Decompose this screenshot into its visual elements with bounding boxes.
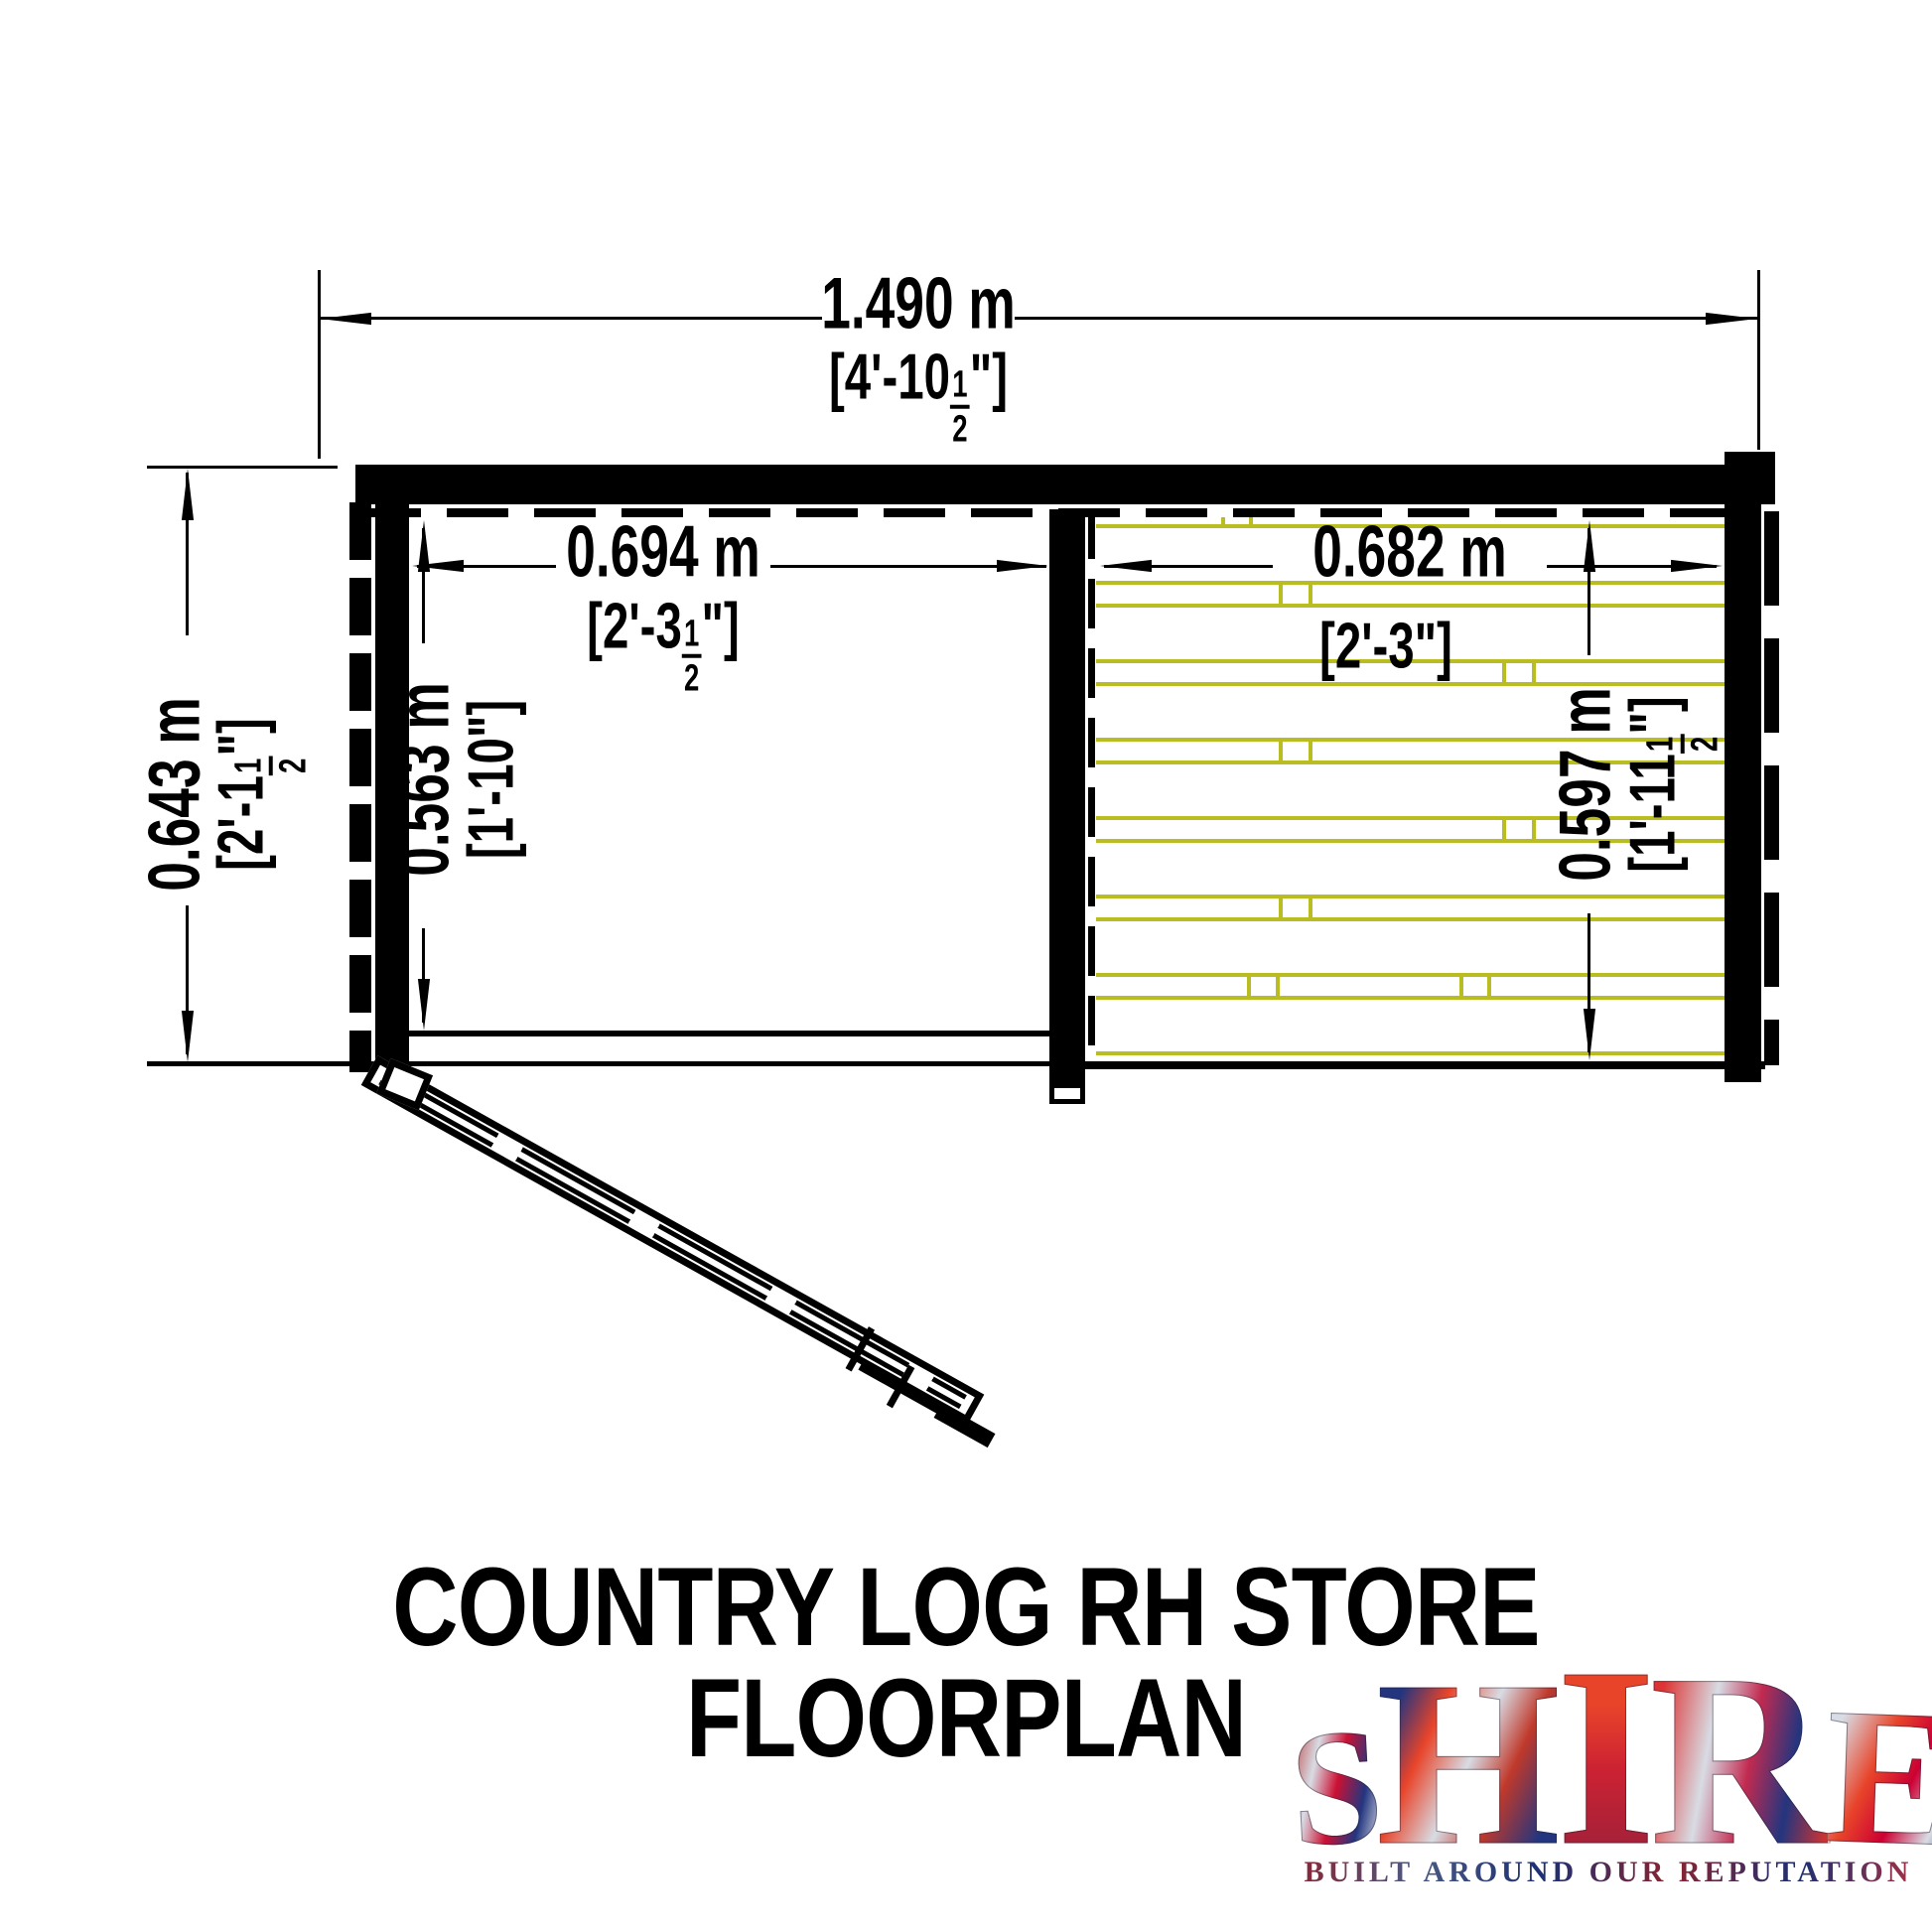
fraction-denominator: 2 <box>952 409 967 449</box>
dim-left-room-depth-imperial: [1'-10"] <box>459 700 523 859</box>
plank-joint-tick <box>1309 895 1312 921</box>
door-opening-sill-upper <box>409 1031 1049 1036</box>
dim-overall-width-metric: 1.490 m <box>821 268 1016 341</box>
dim-overall-width-imperial: [4'-1012"] <box>829 345 1008 449</box>
door-latch-nub <box>934 1404 996 1448</box>
left-wall-cladding-dashed <box>349 502 371 1072</box>
fraction: 12 <box>950 366 970 448</box>
right-wall-cladding-dashed <box>1764 511 1779 1065</box>
door-leaf <box>361 1055 985 1424</box>
floorplan-page: 1.490 m [4'-1012"] 0.643 m [2'-112"] 0.6… <box>0 0 1932 1932</box>
dim-right-room-depth-metric: 0.597 m <box>1550 687 1622 882</box>
arrowhead <box>1706 311 1757 327</box>
dimension-line <box>320 317 822 320</box>
imperial-pre: [2'-1 <box>205 775 277 871</box>
right-wall <box>1725 452 1761 1082</box>
right-room-bottom-wall <box>1085 1061 1765 1069</box>
dimension-line <box>1015 317 1757 320</box>
logo-letter-h: H <box>1376 1646 1560 1882</box>
dim-left-room-depth-metric: 0.563 m <box>388 682 461 877</box>
arrowhead <box>416 979 432 1031</box>
dim-right-room-width-metric: 0.682 m <box>1312 516 1507 589</box>
extension-line <box>1757 270 1760 450</box>
plank-joint-tick <box>1309 738 1312 764</box>
top-wall <box>355 465 1775 504</box>
top-right-corner-block <box>1725 452 1775 504</box>
door-opening-sill-lower <box>147 1061 1049 1066</box>
extension-line <box>147 466 338 469</box>
plank-joint-tick <box>1532 659 1536 686</box>
fraction: 12 <box>230 756 312 775</box>
imperial-post: "] <box>970 341 1008 413</box>
fraction-numerator: 1 <box>230 756 273 775</box>
fraction-numerator: 1 <box>1642 735 1685 755</box>
plank-joint-tick <box>1502 659 1506 686</box>
arrowhead <box>997 558 1048 574</box>
fraction: 12 <box>1642 735 1724 755</box>
plank-joint-tick <box>1279 738 1283 764</box>
plank-joint-tick <box>1221 517 1225 525</box>
shire-logo: SHIRE <box>1291 1628 1926 1884</box>
plank-joint-tick <box>1276 973 1280 1000</box>
fraction-denominator: 2 <box>273 759 313 773</box>
plank-joint-tick <box>1502 816 1506 843</box>
plank-joint-tick <box>1459 973 1463 1000</box>
plank-joint-tick <box>1249 517 1253 525</box>
logo-tagline: BUILT AROUND OUR REPUTATION <box>1291 1856 1926 1889</box>
dim-right-room-width-imperial: [2'-3"] <box>1319 614 1452 678</box>
arrowhead <box>180 469 196 520</box>
logo-letter-i: I <box>1556 1628 1655 1884</box>
middle-wall-dashed-line <box>1088 509 1095 1062</box>
dim-left-room-width-metric: 0.694 m <box>566 516 760 589</box>
arrowhead <box>320 311 371 327</box>
imperial-post: "] <box>702 590 740 662</box>
fraction: 12 <box>682 616 702 697</box>
fraction-denominator: 2 <box>684 658 699 698</box>
fraction-numerator: 1 <box>950 366 970 409</box>
dim-right-room-depth-imperial: [1'-1112"] <box>1620 696 1725 872</box>
imperial-post: "] <box>205 718 277 756</box>
arrowhead <box>180 1011 196 1062</box>
imperial-pre: [4'-10 <box>829 341 950 413</box>
middle-partition-wall <box>1049 509 1085 1104</box>
imperial-pre: [1'-11 <box>1616 754 1689 872</box>
fraction-numerator: 1 <box>682 616 702 658</box>
dim-overall-depth-metric: 0.643 m <box>139 697 211 892</box>
extension-line <box>318 270 321 459</box>
plank-joint-tick <box>1487 973 1491 1000</box>
dim-overall-depth-imperial: [2'-112"] <box>208 718 313 871</box>
imperial-pre: [2'-3 <box>587 590 682 662</box>
logo-letter-e: E <box>1823 1679 1932 1877</box>
plank-joint-tick <box>1532 816 1536 843</box>
logo-letter-s: S <box>1287 1703 1387 1872</box>
plank-joint-tick <box>1247 973 1251 1000</box>
door-panel-dashed-line <box>378 1080 961 1409</box>
fraction-denominator: 2 <box>1685 737 1725 752</box>
door-panel-dashed-line <box>384 1070 967 1399</box>
dim-left-room-width-imperial: [2'-312"] <box>587 594 740 698</box>
plank-joint-tick <box>1279 581 1283 608</box>
imperial-post: "] <box>1616 696 1689 734</box>
middle-wall-notch <box>1054 1088 1080 1099</box>
plank-joint-tick <box>1279 895 1283 921</box>
logo-letter-r: R <box>1650 1637 1828 1883</box>
